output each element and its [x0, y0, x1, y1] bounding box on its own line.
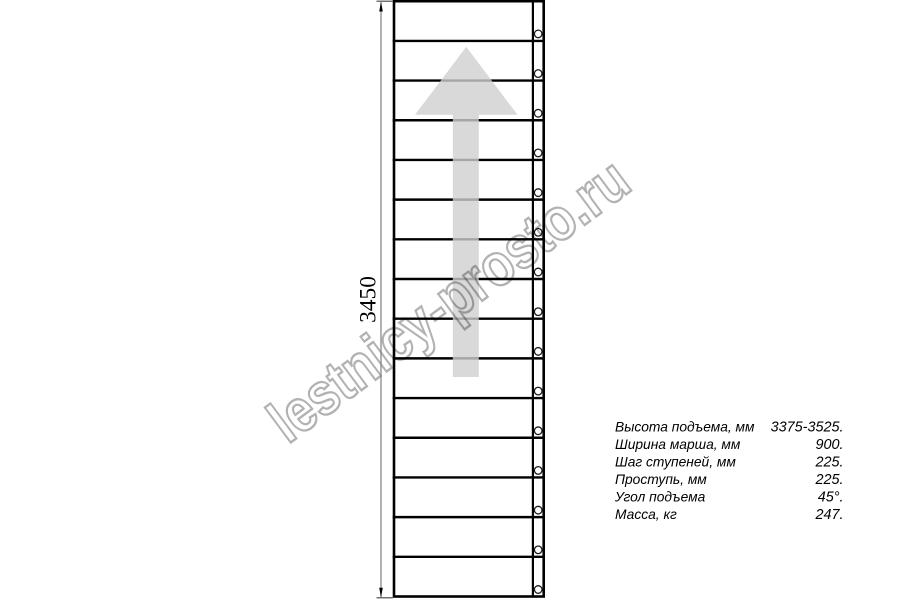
svg-text:45°.: 45°. — [818, 490, 844, 506]
svg-text:225.: 225. — [814, 455, 843, 471]
svg-text:Угол подъема: Угол подъема — [614, 490, 706, 505]
svg-text:225.: 225. — [814, 472, 843, 488]
svg-text:Шаг ступеней, мм: Шаг ступеней, мм — [615, 455, 736, 470]
svg-text:247.: 247. — [814, 507, 843, 523]
svg-text:Высота подъема, мм: Высота подъема, мм — [615, 419, 755, 434]
svg-text:Масса, кг: Масса, кг — [615, 507, 677, 522]
svg-text:Проступь, мм: Проступь, мм — [615, 472, 707, 487]
svg-text:3375-3525.: 3375-3525. — [771, 419, 844, 435]
svg-text:Ширина марша, мм: Ширина марша, мм — [615, 437, 741, 452]
svg-text:3450: 3450 — [355, 276, 381, 323]
svg-text:900.: 900. — [815, 437, 843, 453]
